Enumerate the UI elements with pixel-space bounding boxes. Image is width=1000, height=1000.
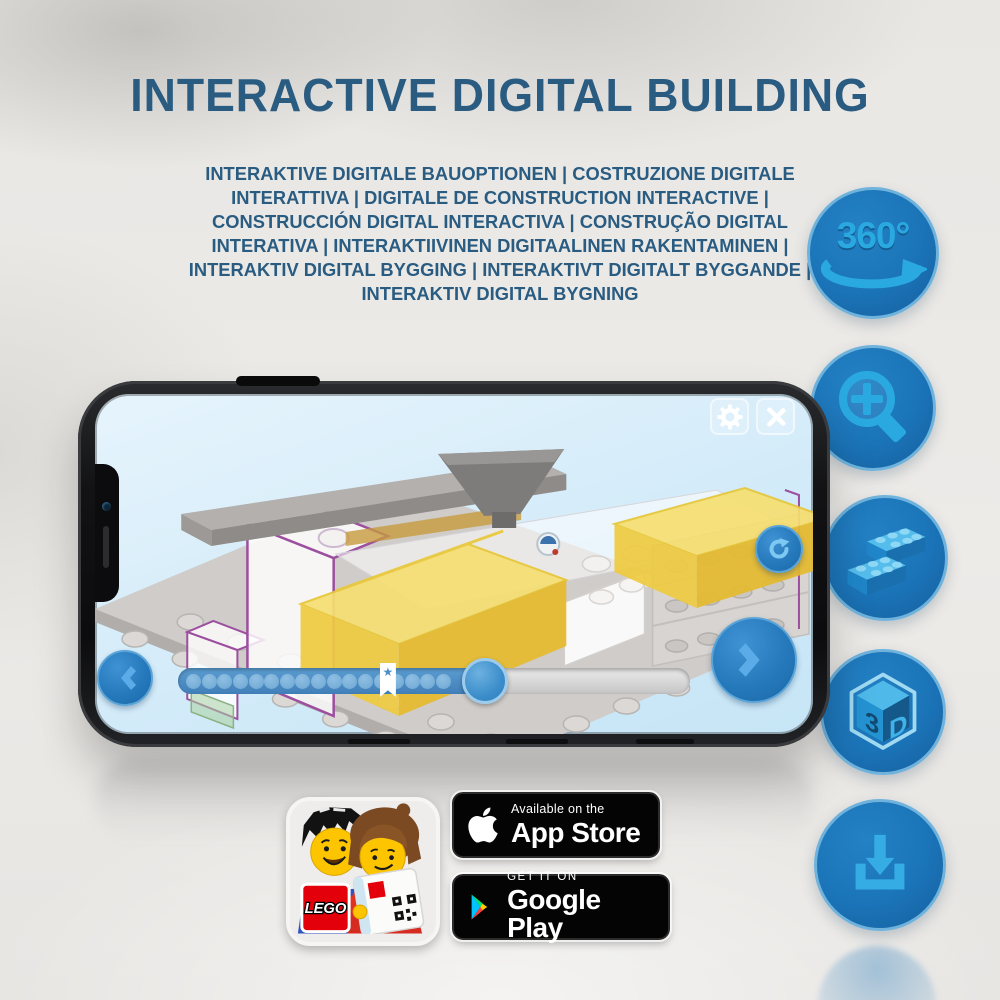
camera-icon — [102, 502, 111, 511]
progress-dot — [186, 674, 201, 689]
progress-dot — [436, 674, 451, 689]
close-button[interactable] — [756, 398, 795, 435]
previous-step-button[interactable] — [97, 650, 153, 706]
progress-dot — [249, 674, 264, 689]
app-store-badge[interactable]: Available on the App Store — [452, 792, 660, 858]
progress-dot — [233, 674, 248, 689]
progress-bar[interactable]: ★ — [178, 668, 690, 694]
lego-app-icon[interactable]: LEGO — [286, 797, 440, 946]
feature-download — [814, 799, 946, 931]
apple-icon — [466, 805, 500, 845]
gear-icon — [717, 404, 743, 430]
progress-dots — [186, 674, 451, 689]
chevron-right-icon — [737, 639, 771, 681]
progress-dot — [405, 674, 420, 689]
rotation-arrow-icon — [819, 257, 927, 297]
progress-knob[interactable] — [462, 658, 508, 704]
3d-cube-icon: 3 D — [835, 664, 931, 760]
speaker-grille — [506, 739, 568, 744]
google-play-name: Google Play — [507, 886, 654, 942]
next-step-button[interactable] — [711, 617, 797, 703]
feature-360-rotation: 360° — [807, 187, 939, 319]
speaker-grille — [636, 739, 694, 744]
app-store-tagline: Available on the — [511, 803, 640, 816]
google-play-badge[interactable]: GET IT ON Google Play — [452, 874, 670, 940]
progress-dot — [295, 674, 310, 689]
main-title: INTERACTIVE DIGITAL BUILDING — [15, 68, 985, 122]
subtitle-translations: INTERAKTIVE DIGITALE BAUOPTIONEN | COSTR… — [173, 162, 826, 306]
phone-notch — [95, 464, 119, 602]
svg-text:LEGO: LEGO — [305, 901, 347, 917]
progress-dot — [358, 674, 373, 689]
power-button — [236, 376, 320, 386]
progress-dot — [327, 674, 342, 689]
speaker-grille — [348, 739, 410, 744]
download-icon — [834, 819, 926, 911]
feature-3d: 3 D — [820, 649, 946, 775]
settings-button[interactable] — [710, 398, 749, 435]
phone-screen: ★ — [95, 394, 813, 734]
progress-fill — [178, 668, 485, 694]
lego-app-icon-art: LEGO — [290, 801, 428, 934]
feature-brick — [822, 495, 948, 621]
earpiece-speaker — [103, 526, 109, 568]
progress-dot — [311, 674, 326, 689]
lego-brick-icon — [837, 510, 933, 606]
svg-text:3: 3 — [865, 705, 879, 740]
rotate-icon — [765, 535, 793, 563]
zoom-in-icon — [831, 366, 915, 450]
rotate-view-button[interactable] — [755, 525, 803, 573]
app-store-name: App Store — [511, 819, 640, 847]
progress-dot — [420, 674, 435, 689]
360-rotation-icon: 360° — [837, 215, 910, 257]
phone: ★ — [78, 381, 830, 747]
progress-dot — [264, 674, 279, 689]
progress-dot — [217, 674, 232, 689]
progress-dot — [342, 674, 357, 689]
close-icon — [765, 406, 787, 428]
progress-dot — [280, 674, 295, 689]
google-play-icon — [466, 889, 496, 925]
page-background: INTERACTIVE DIGITAL BUILDING INTERAKTIVE… — [0, 0, 1000, 1000]
google-play-tagline: GET IT ON — [507, 872, 654, 884]
chevron-left-icon — [113, 663, 137, 693]
progress-dot — [202, 674, 217, 689]
download-icon-reflection — [818, 946, 936, 1000]
